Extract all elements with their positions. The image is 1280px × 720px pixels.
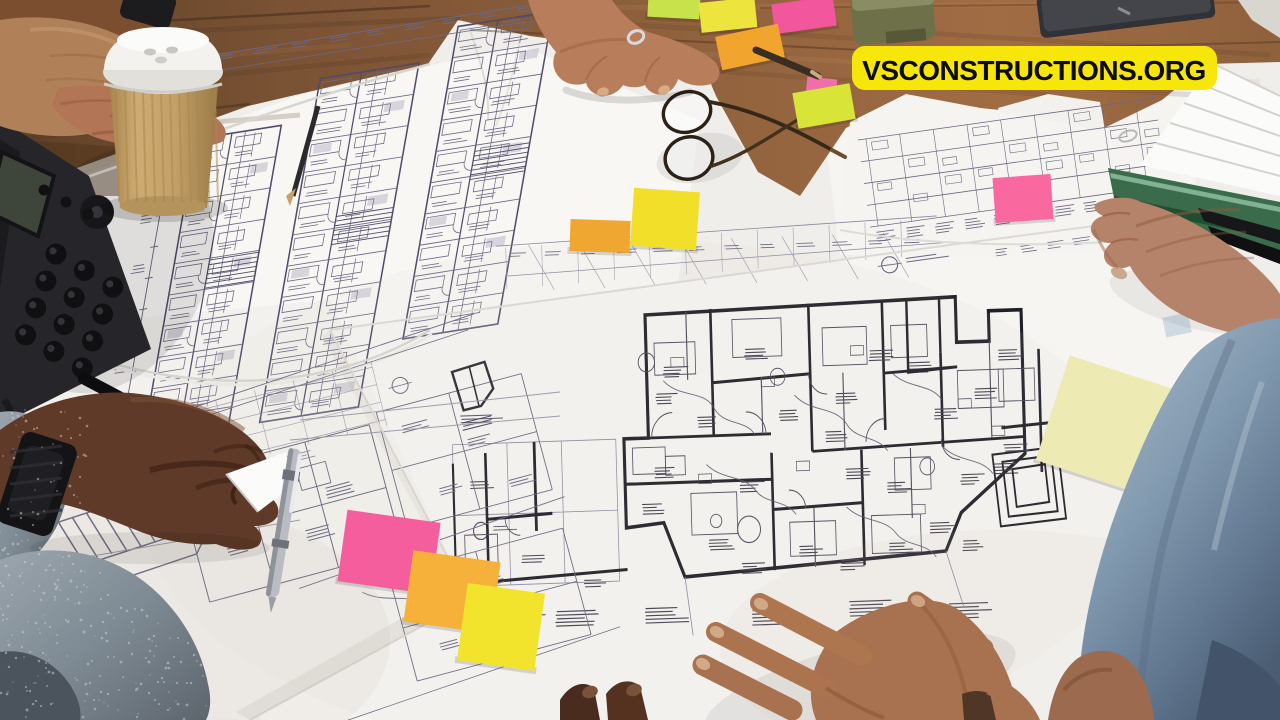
svg-text:VSCONSTRUCTIONS.ORG: VSCONSTRUCTIONS.ORG [862,55,1206,86]
